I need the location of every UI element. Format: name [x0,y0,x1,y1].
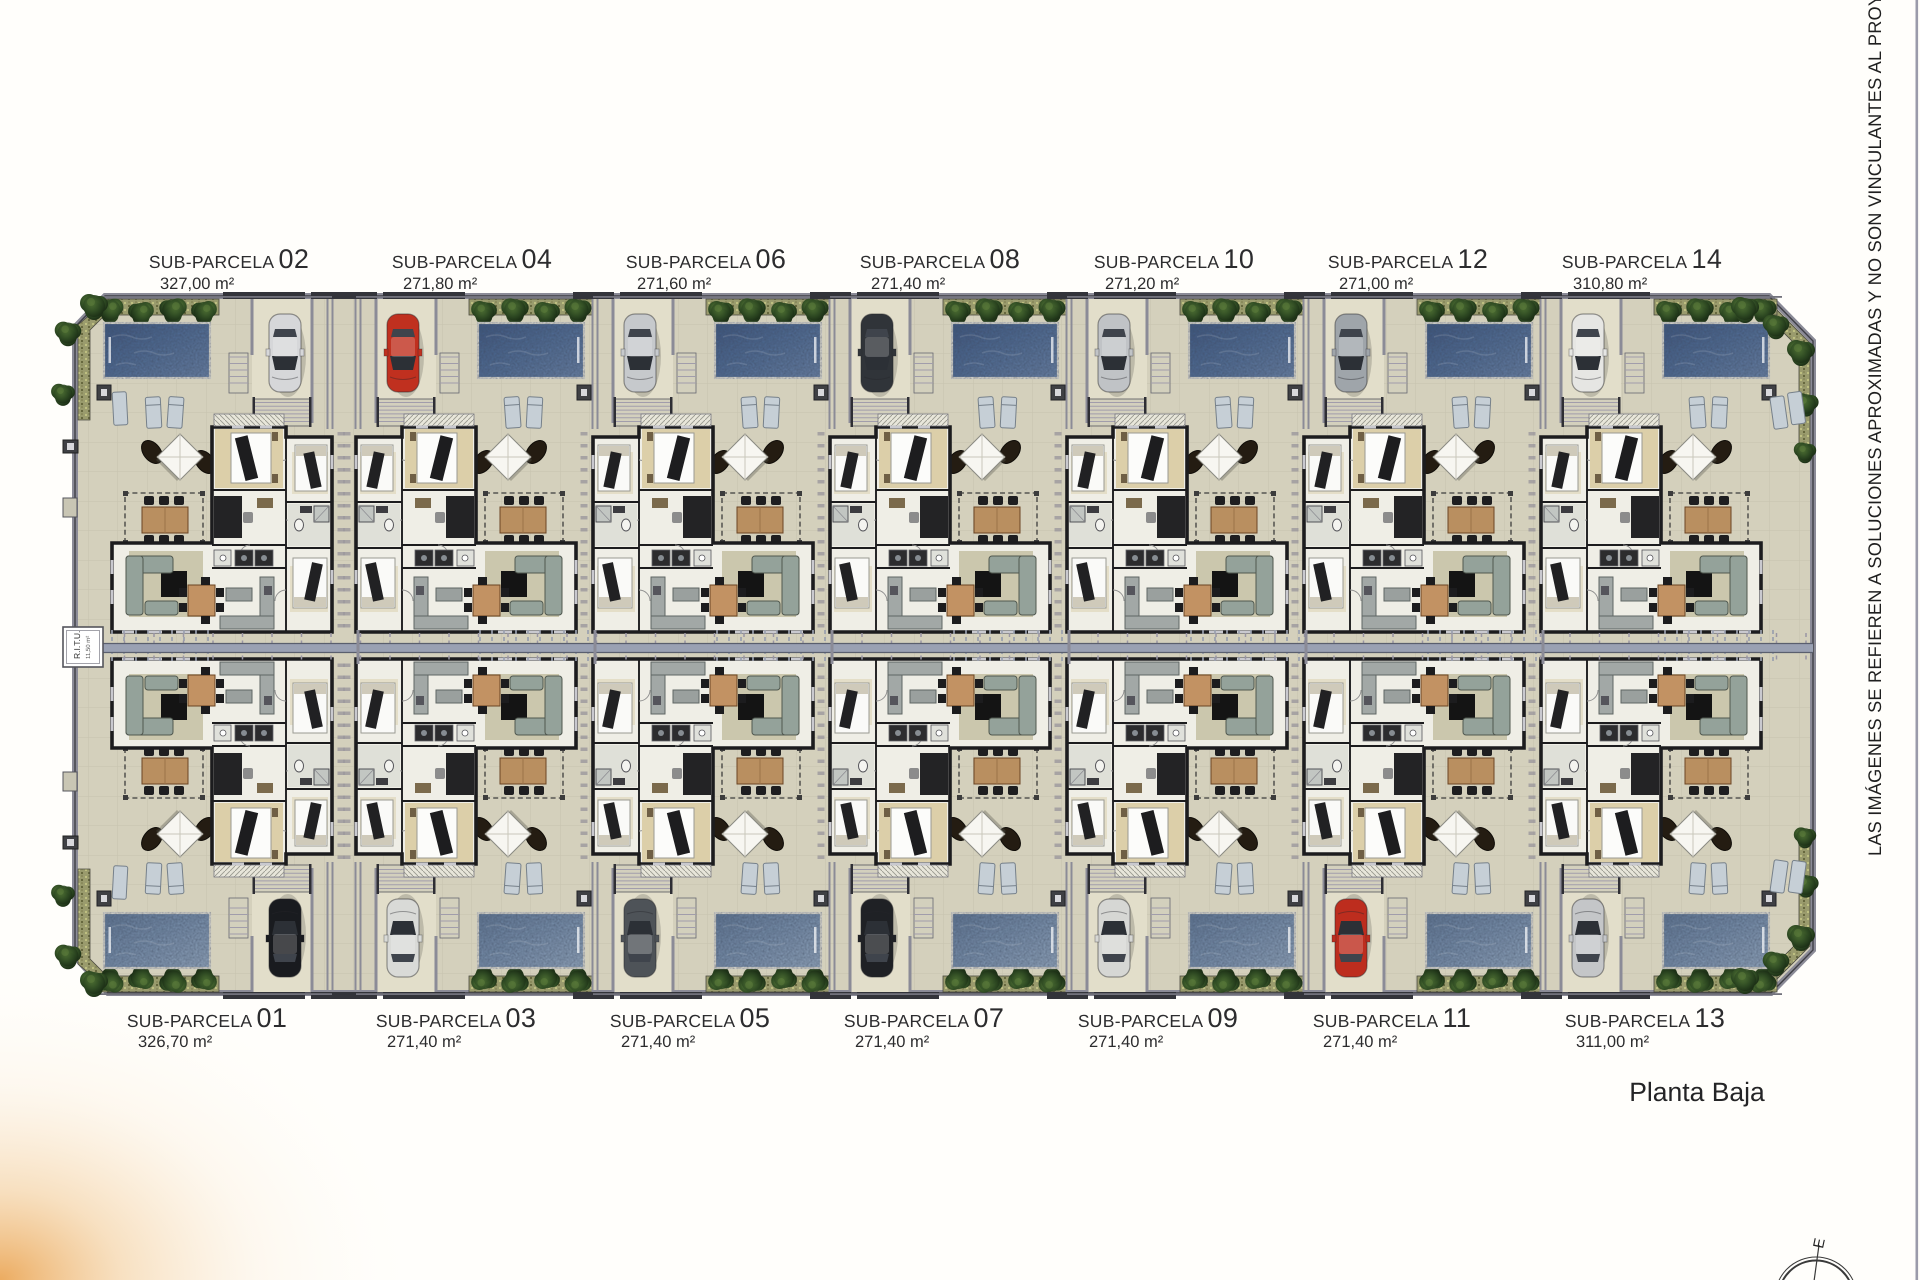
svg-text:310,80 m²: 310,80 m² [1573,275,1648,293]
svg-text:271,80 m²: 271,80 m² [403,275,478,293]
svg-text:11,50 m²: 11,50 m² [85,636,92,659]
svg-text:327,00 m²: 327,00 m² [160,275,235,293]
svg-text:Planta Baja: Planta Baja [1629,1077,1765,1107]
svg-text:326,70 m²: 326,70 m² [138,1033,213,1051]
svg-text:271,40 m²: 271,40 m² [855,1033,930,1051]
svg-text:R.I.T.U.: R.I.T.U. [72,631,82,659]
svg-text:271,40 m²: 271,40 m² [387,1033,462,1051]
svg-text:271,40 m²: 271,40 m² [871,275,946,293]
svg-text:LAS IMÁGENES SE REFIEREN A SOL: LAS IMÁGENES SE REFIEREN A SOLUCIONES AP… [1865,0,1885,856]
svg-text:271,40 m²: 271,40 m² [1323,1033,1398,1051]
svg-text:271,00 m²: 271,00 m² [1339,275,1414,293]
svg-text:271,20 m²: 271,20 m² [1105,275,1180,293]
svg-text:311,00 m²: 311,00 m² [1576,1033,1650,1051]
svg-text:271,60 m²: 271,60 m² [637,275,712,293]
svg-text:271,40 m²: 271,40 m² [1089,1033,1164,1051]
svg-text:271,40 m²: 271,40 m² [621,1033,696,1051]
